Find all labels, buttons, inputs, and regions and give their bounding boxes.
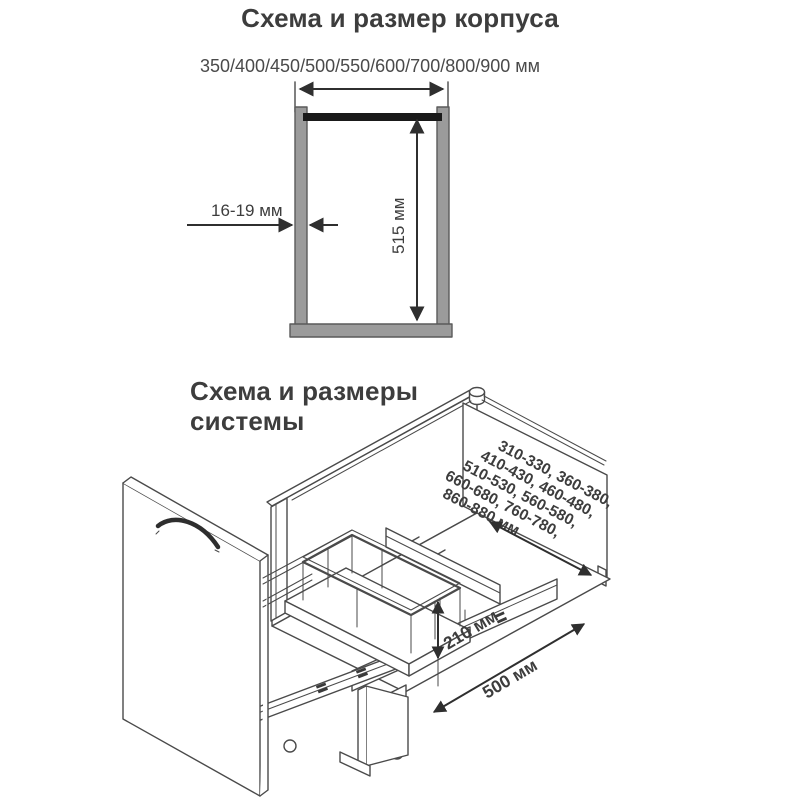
inner-height-dimension: 515 мм <box>389 120 417 320</box>
cabinet-left-wall <box>295 107 307 335</box>
cabinet-width-dimension-arrow <box>295 82 448 112</box>
system-diagram: 310-330, 360-380, 410-430, 460-480, 510-… <box>100 370 640 800</box>
cabinet-right-wall <box>437 107 449 335</box>
cabinet-width-options-label: 350/400/450/500/550/600/700/800/900 мм <box>0 56 740 77</box>
pedestal <box>340 686 408 776</box>
cabinet-top-rail <box>303 113 442 121</box>
door-panel <box>123 477 268 796</box>
length-label: 500 мм <box>479 655 541 703</box>
inner-height-label: 515 мм <box>389 198 408 254</box>
cabinet-section-title: Схема и размер корпуса <box>0 3 800 33</box>
panel-thickness-callout: 16-19 мм <box>187 201 338 225</box>
cabinet-bottom-panel <box>290 324 452 337</box>
panel-thickness-label: 16-19 мм <box>211 201 283 220</box>
cabinet-diagram: 16-19 мм 515 мм <box>150 75 510 370</box>
cabinet-body <box>290 107 452 337</box>
diagram-page: Схема и размер корпуса 350/400/450/500/5… <box>0 0 800 800</box>
